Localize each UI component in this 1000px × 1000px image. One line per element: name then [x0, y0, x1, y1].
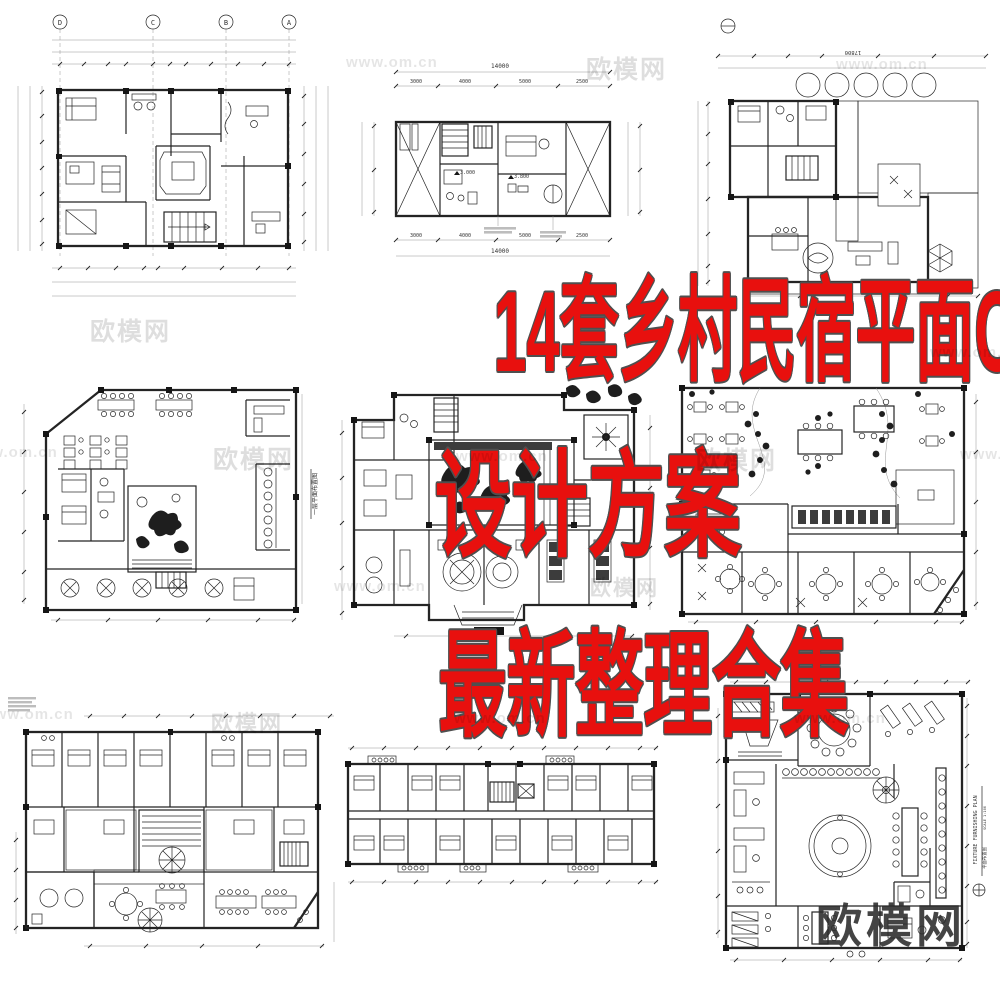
walls	[396, 122, 610, 216]
watermark-site-url: www.om.cn	[0, 706, 74, 723]
grid-bubble	[721, 19, 735, 33]
pavilion	[878, 164, 920, 206]
watermark-site-name: 欧模网	[90, 312, 171, 348]
floorplan-corridor-rooms	[340, 738, 666, 894]
watermark-site-url: www.om.cn	[334, 578, 426, 595]
grid-bubbles: D C B A	[53, 15, 296, 256]
walls	[43, 387, 299, 613]
banquet-tables	[893, 768, 946, 898]
bottom-right-dining	[216, 842, 308, 922]
watermark-site-url: www.om.cn	[930, 344, 1000, 361]
watermark-site-url: www.om.cn	[346, 54, 438, 71]
upper-bedrooms	[32, 736, 306, 834]
dim: 2500	[576, 233, 588, 239]
dim: 4000	[459, 79, 471, 85]
floorplan-villa-upper: D C B A	[6, 6, 340, 306]
trees	[796, 73, 936, 97]
balconies	[368, 756, 598, 872]
grid-letter: C	[151, 19, 155, 27]
side-title: 一层平面布置图	[311, 469, 319, 519]
site-logo-corner: 欧模网	[816, 890, 966, 956]
watermark-site-url: www.om.cn	[960, 446, 1000, 463]
living-room	[160, 152, 206, 194]
plan-title-cn: 平面布置图	[981, 846, 988, 869]
dim-total: 17800	[845, 49, 862, 55]
plan-title-vertical: 一层平面布置图	[311, 473, 319, 515]
dim: 4000	[459, 233, 471, 239]
floorplan-square-inn: 一层平面布置图	[6, 374, 332, 626]
dim: 3000	[410, 233, 422, 239]
bottom-tables	[61, 578, 254, 600]
lounge-beds	[880, 701, 944, 736]
watermark-site-url: www.om.cn	[454, 710, 546, 727]
headline-line1: 14套乡村民宿平面CAD	[494, 276, 1000, 390]
beds	[354, 776, 652, 850]
level-label: 3.800	[514, 174, 529, 180]
grid-letter: B	[224, 19, 228, 27]
rooms-furniture: 3.000 3.800	[444, 136, 562, 204]
hatched-terrace	[896, 470, 954, 524]
watermark-site-url: www.om.cn	[836, 56, 928, 73]
service-counter	[792, 506, 896, 528]
stairs	[442, 124, 492, 156]
bottom-dining	[109, 884, 186, 932]
floorplan-deck-courtyard: 17800	[688, 6, 996, 302]
furniture	[66, 94, 280, 234]
central-steps	[139, 810, 204, 873]
bedrooms	[62, 474, 114, 524]
watermark-site-url: www.om.cn	[456, 448, 548, 465]
courtyard	[128, 486, 196, 588]
dimension-lines	[18, 40, 328, 296]
level-label: 3.000	[460, 170, 475, 176]
bottom-left-room	[26, 872, 94, 928]
watermark-site-url: www.om.cn	[794, 710, 886, 727]
watermark-site-name: 欧模网	[696, 441, 777, 477]
title-block: FIXTURE FURNISHING PLAN SCALE 1:100 平面布置…	[973, 786, 988, 896]
watermark-site-url: www.om.cn	[0, 444, 58, 461]
floorplan-guestroom-wing	[4, 692, 340, 958]
banquet-chairs	[254, 406, 284, 548]
dim-total-top: 14000	[491, 63, 509, 70]
stair	[164, 212, 216, 242]
watermark-site-name: 欧模网	[211, 706, 283, 738]
seat-row	[782, 769, 882, 778]
plan-title-en: FIXTURE FURNISHING PLAN	[973, 795, 979, 864]
watermark-site-name: 欧模网	[586, 50, 667, 86]
stair-elevator	[490, 782, 534, 802]
spiral-stair	[873, 777, 899, 803]
watermark-site-name: 欧模网	[213, 440, 294, 476]
dim-total-bottom: 14000	[491, 248, 509, 255]
grid-letter: D	[58, 19, 62, 27]
sofa-zone	[732, 772, 770, 893]
grid-letter: A	[287, 19, 292, 27]
dim: 5000	[519, 233, 531, 239]
watermark-site-name: 欧模网	[590, 572, 659, 602]
plan-scale: SCALE 1:100	[983, 806, 987, 830]
dim: 3000	[410, 79, 422, 85]
dim: 5000	[519, 79, 531, 85]
poster-canvas: D C B A	[0, 0, 1000, 1000]
central-feature	[809, 815, 871, 877]
walls	[345, 761, 657, 867]
